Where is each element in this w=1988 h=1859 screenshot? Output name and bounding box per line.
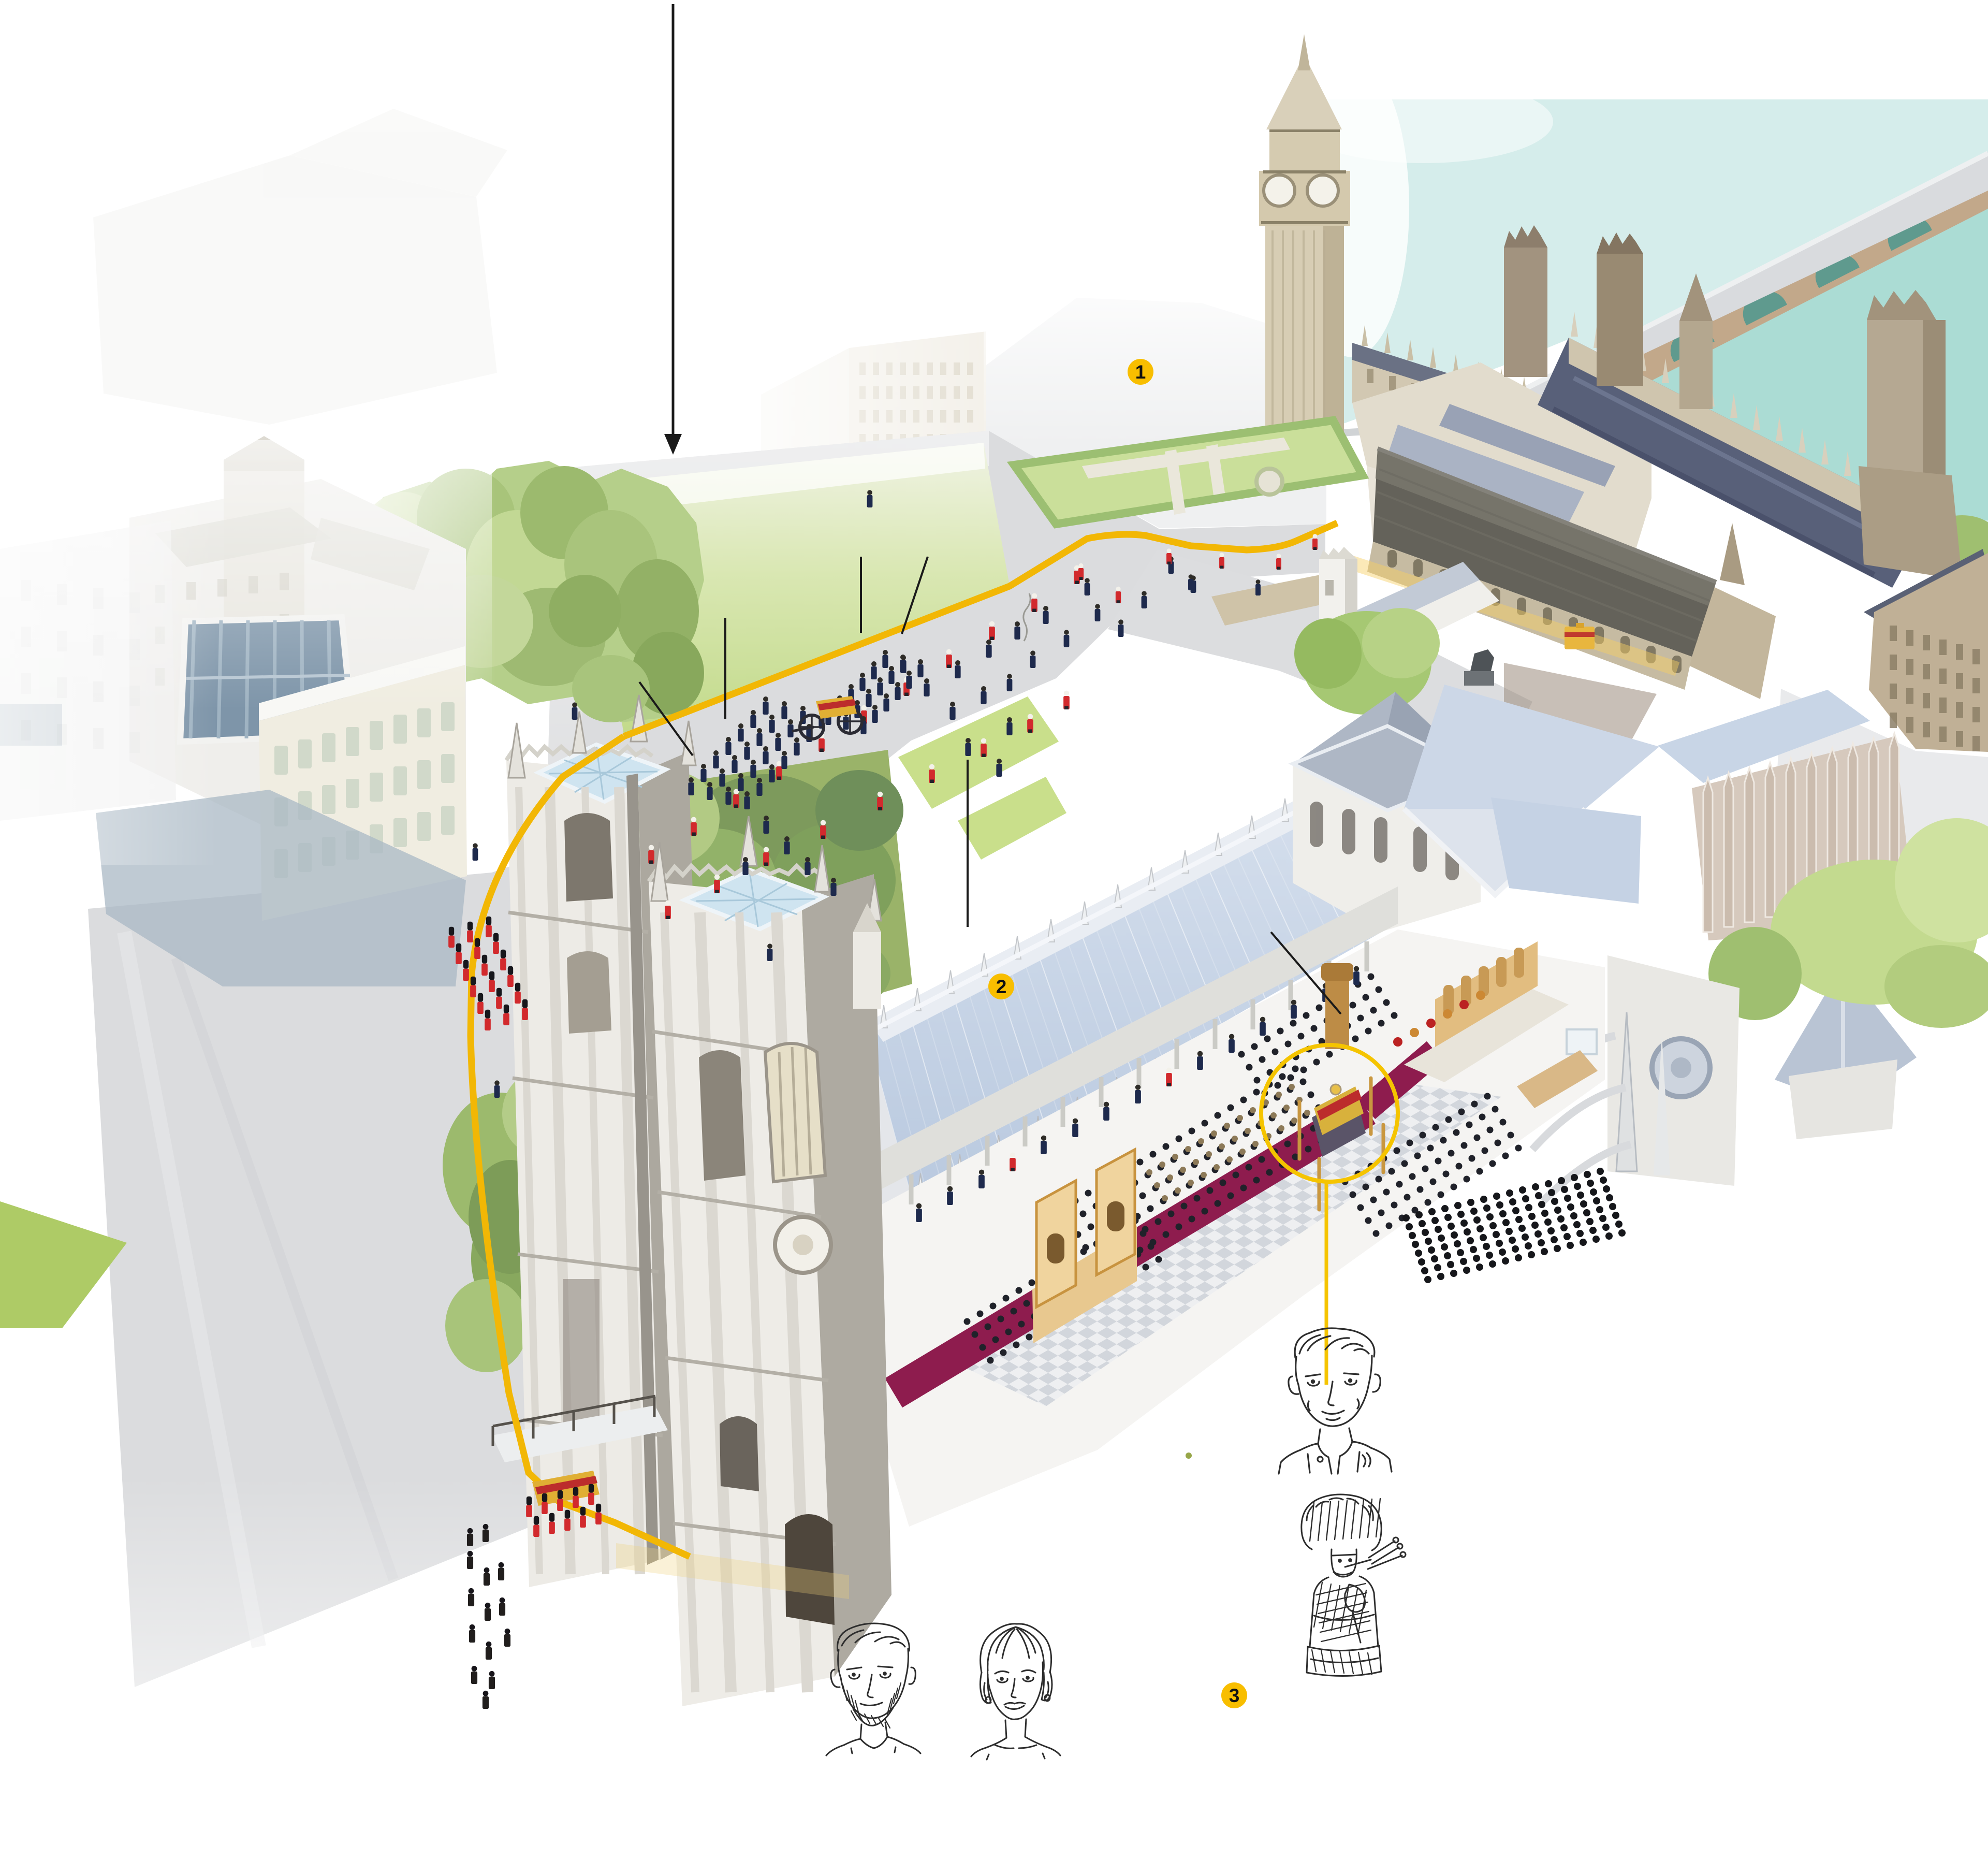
svg-text:1: 1 — [1135, 361, 1146, 383]
svg-text:2: 2 — [996, 976, 1007, 997]
svg-text:3: 3 — [1229, 1685, 1240, 1706]
